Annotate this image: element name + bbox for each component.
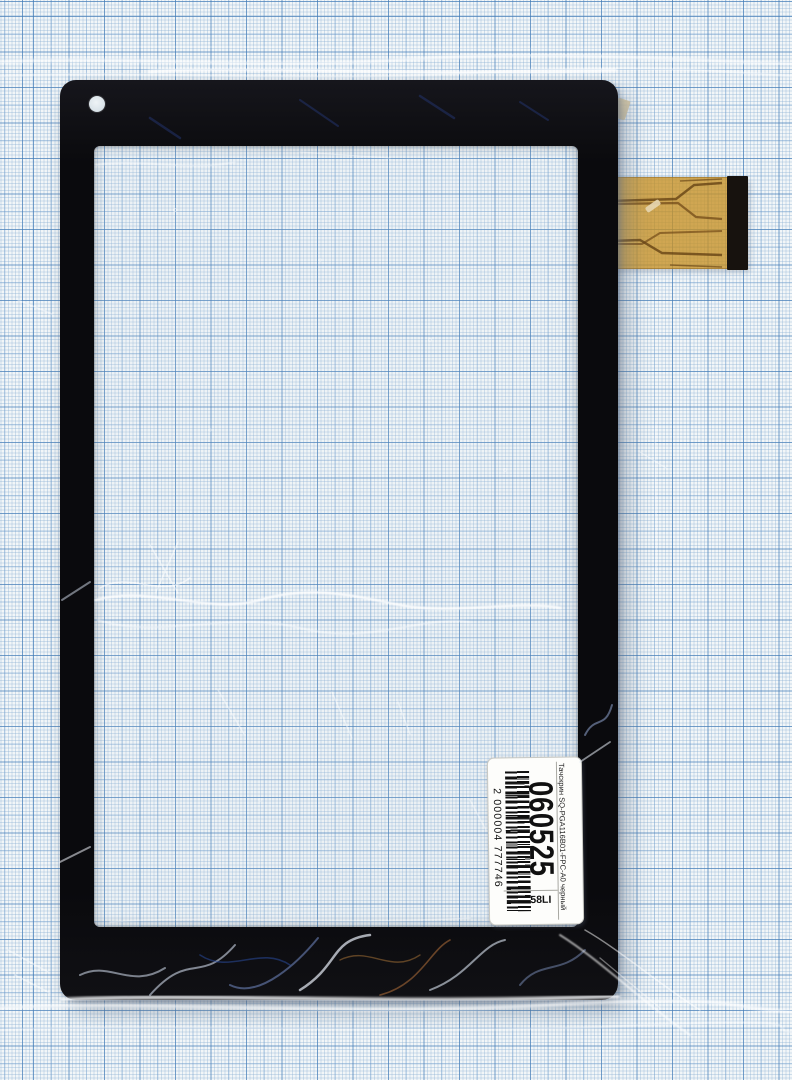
batch-code: 58LI xyxy=(526,894,556,906)
camera-hole xyxy=(89,96,105,112)
sku-number: 060525 xyxy=(525,765,557,893)
flex-cable-stiffener xyxy=(727,176,748,270)
product-photo: 2 000004 777746 060525 Тачскрин SQ-PGA11… xyxy=(0,0,792,1080)
barcode-digits: 2 000004 777746 xyxy=(491,768,504,908)
product-label: 2 000004 777746 060525 Тачскрин SQ-PGA11… xyxy=(487,756,584,925)
flex-cable xyxy=(610,177,748,269)
